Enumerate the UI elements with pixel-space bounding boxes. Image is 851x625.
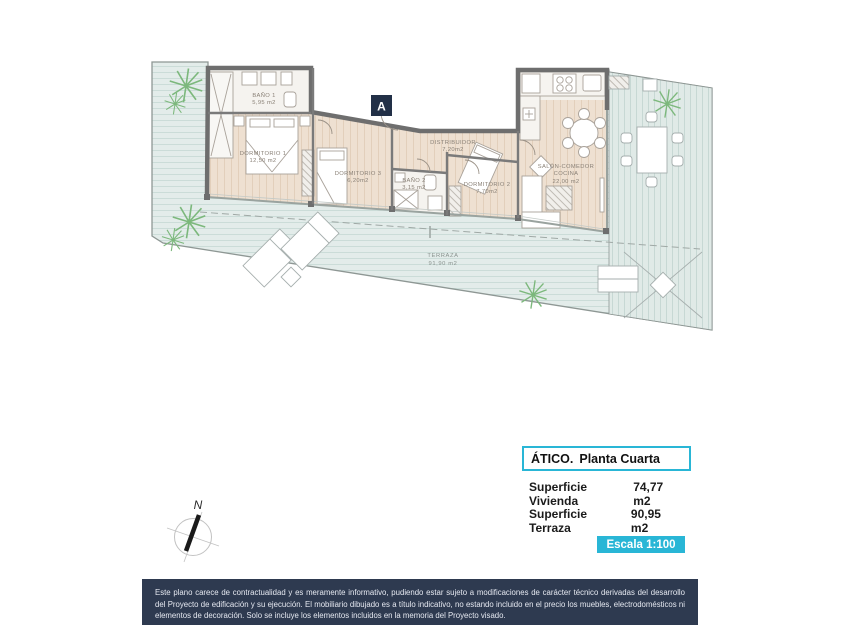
room-label-salon-2: COCINA xyxy=(554,171,579,177)
room-label-dormitorio1: DORMITORIO 1 xyxy=(240,151,287,157)
plan-title-prefix: ÁTICO. xyxy=(531,452,573,466)
room-area-bano1: 5,95 m2 xyxy=(252,100,275,106)
surface-value-vivienda: 74,77 m2 xyxy=(633,480,681,508)
room-label-bano2: BAÑO 2 xyxy=(402,177,425,184)
plan-title-text: Planta Cuarta xyxy=(579,452,660,466)
surface-row-terraza: Superficie Terraza 90,95 m2 xyxy=(529,507,681,535)
surface-value-terraza: 90,95 m2 xyxy=(631,507,681,535)
room-label-terraza: TERRAZA xyxy=(427,253,458,259)
room-label-dormitorio3: DORMITORIO 3 xyxy=(335,171,382,177)
room-label-bano1: BAÑO 1 xyxy=(252,92,275,99)
room-area-dormitorio1: 12,50 m2 xyxy=(250,158,277,164)
room-area-dormitorio2: 7,70m2 xyxy=(476,189,497,195)
surface-row-vivienda: Superficie Vivienda 74,77 m2 xyxy=(529,480,681,508)
disclaimer-bar: Este plano carece de contractualidad y e… xyxy=(142,579,698,625)
room-label-distribuidor: DISTRIBUIDOR xyxy=(430,140,476,146)
surface-label-vivienda: Superficie Vivienda xyxy=(529,480,633,508)
room-area-terraza: 91,90 m2 xyxy=(429,261,458,267)
north-label: N xyxy=(194,498,203,512)
section-marker-label: A xyxy=(377,100,386,114)
room-area-salon: 22,00 m2 xyxy=(553,179,580,185)
north-compass-icon: N xyxy=(167,498,219,562)
room-area-distribuidor: 7,20m2 xyxy=(442,147,463,153)
section-marker: A xyxy=(371,95,392,116)
room-area-bano2: 3,15 m2 xyxy=(402,185,425,191)
floor-plan-page: A BAÑO 1 5,95 m2 DORMITORIO 1 12,50 m2 D… xyxy=(0,0,851,625)
room-label-salon: SALÓN-COMEDOR xyxy=(538,163,594,170)
surface-label-terraza: Superficie Terraza xyxy=(529,507,631,535)
room-area-dormitorio3: 6,20m2 xyxy=(347,178,368,184)
room-label-dormitorio2: DORMITORIO 2 xyxy=(464,182,511,188)
scale-badge: Escala 1:100 xyxy=(597,536,685,553)
plan-title-box: ÁTICO. Planta Cuarta xyxy=(522,446,691,471)
floor-plan-drawing: A BAÑO 1 5,95 m2 DORMITORIO 1 12,50 m2 D… xyxy=(0,0,851,625)
